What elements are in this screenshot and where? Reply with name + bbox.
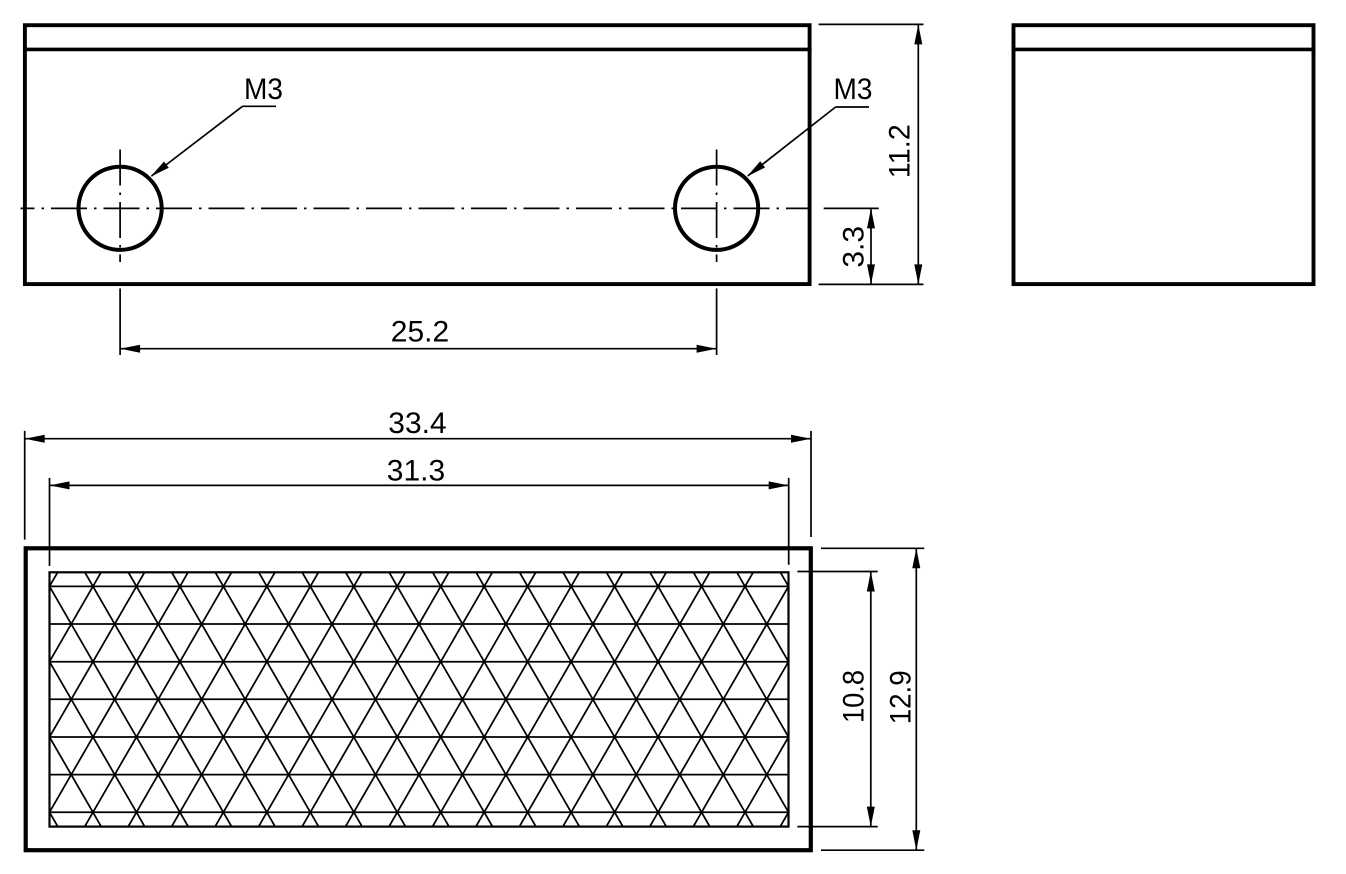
svg-text:10.8: 10.8 (838, 670, 871, 723)
svg-text:31.3: 31.3 (387, 454, 445, 487)
svg-text:11.2: 11.2 (884, 124, 917, 178)
svg-text:M3: M3 (834, 73, 873, 106)
svg-text:3.3: 3.3 (838, 226, 871, 268)
svg-text:M3: M3 (244, 73, 283, 106)
svg-text:25.2: 25.2 (391, 316, 449, 349)
svg-text:33.4: 33.4 (388, 407, 446, 440)
svg-text:12.9: 12.9 (884, 670, 917, 724)
